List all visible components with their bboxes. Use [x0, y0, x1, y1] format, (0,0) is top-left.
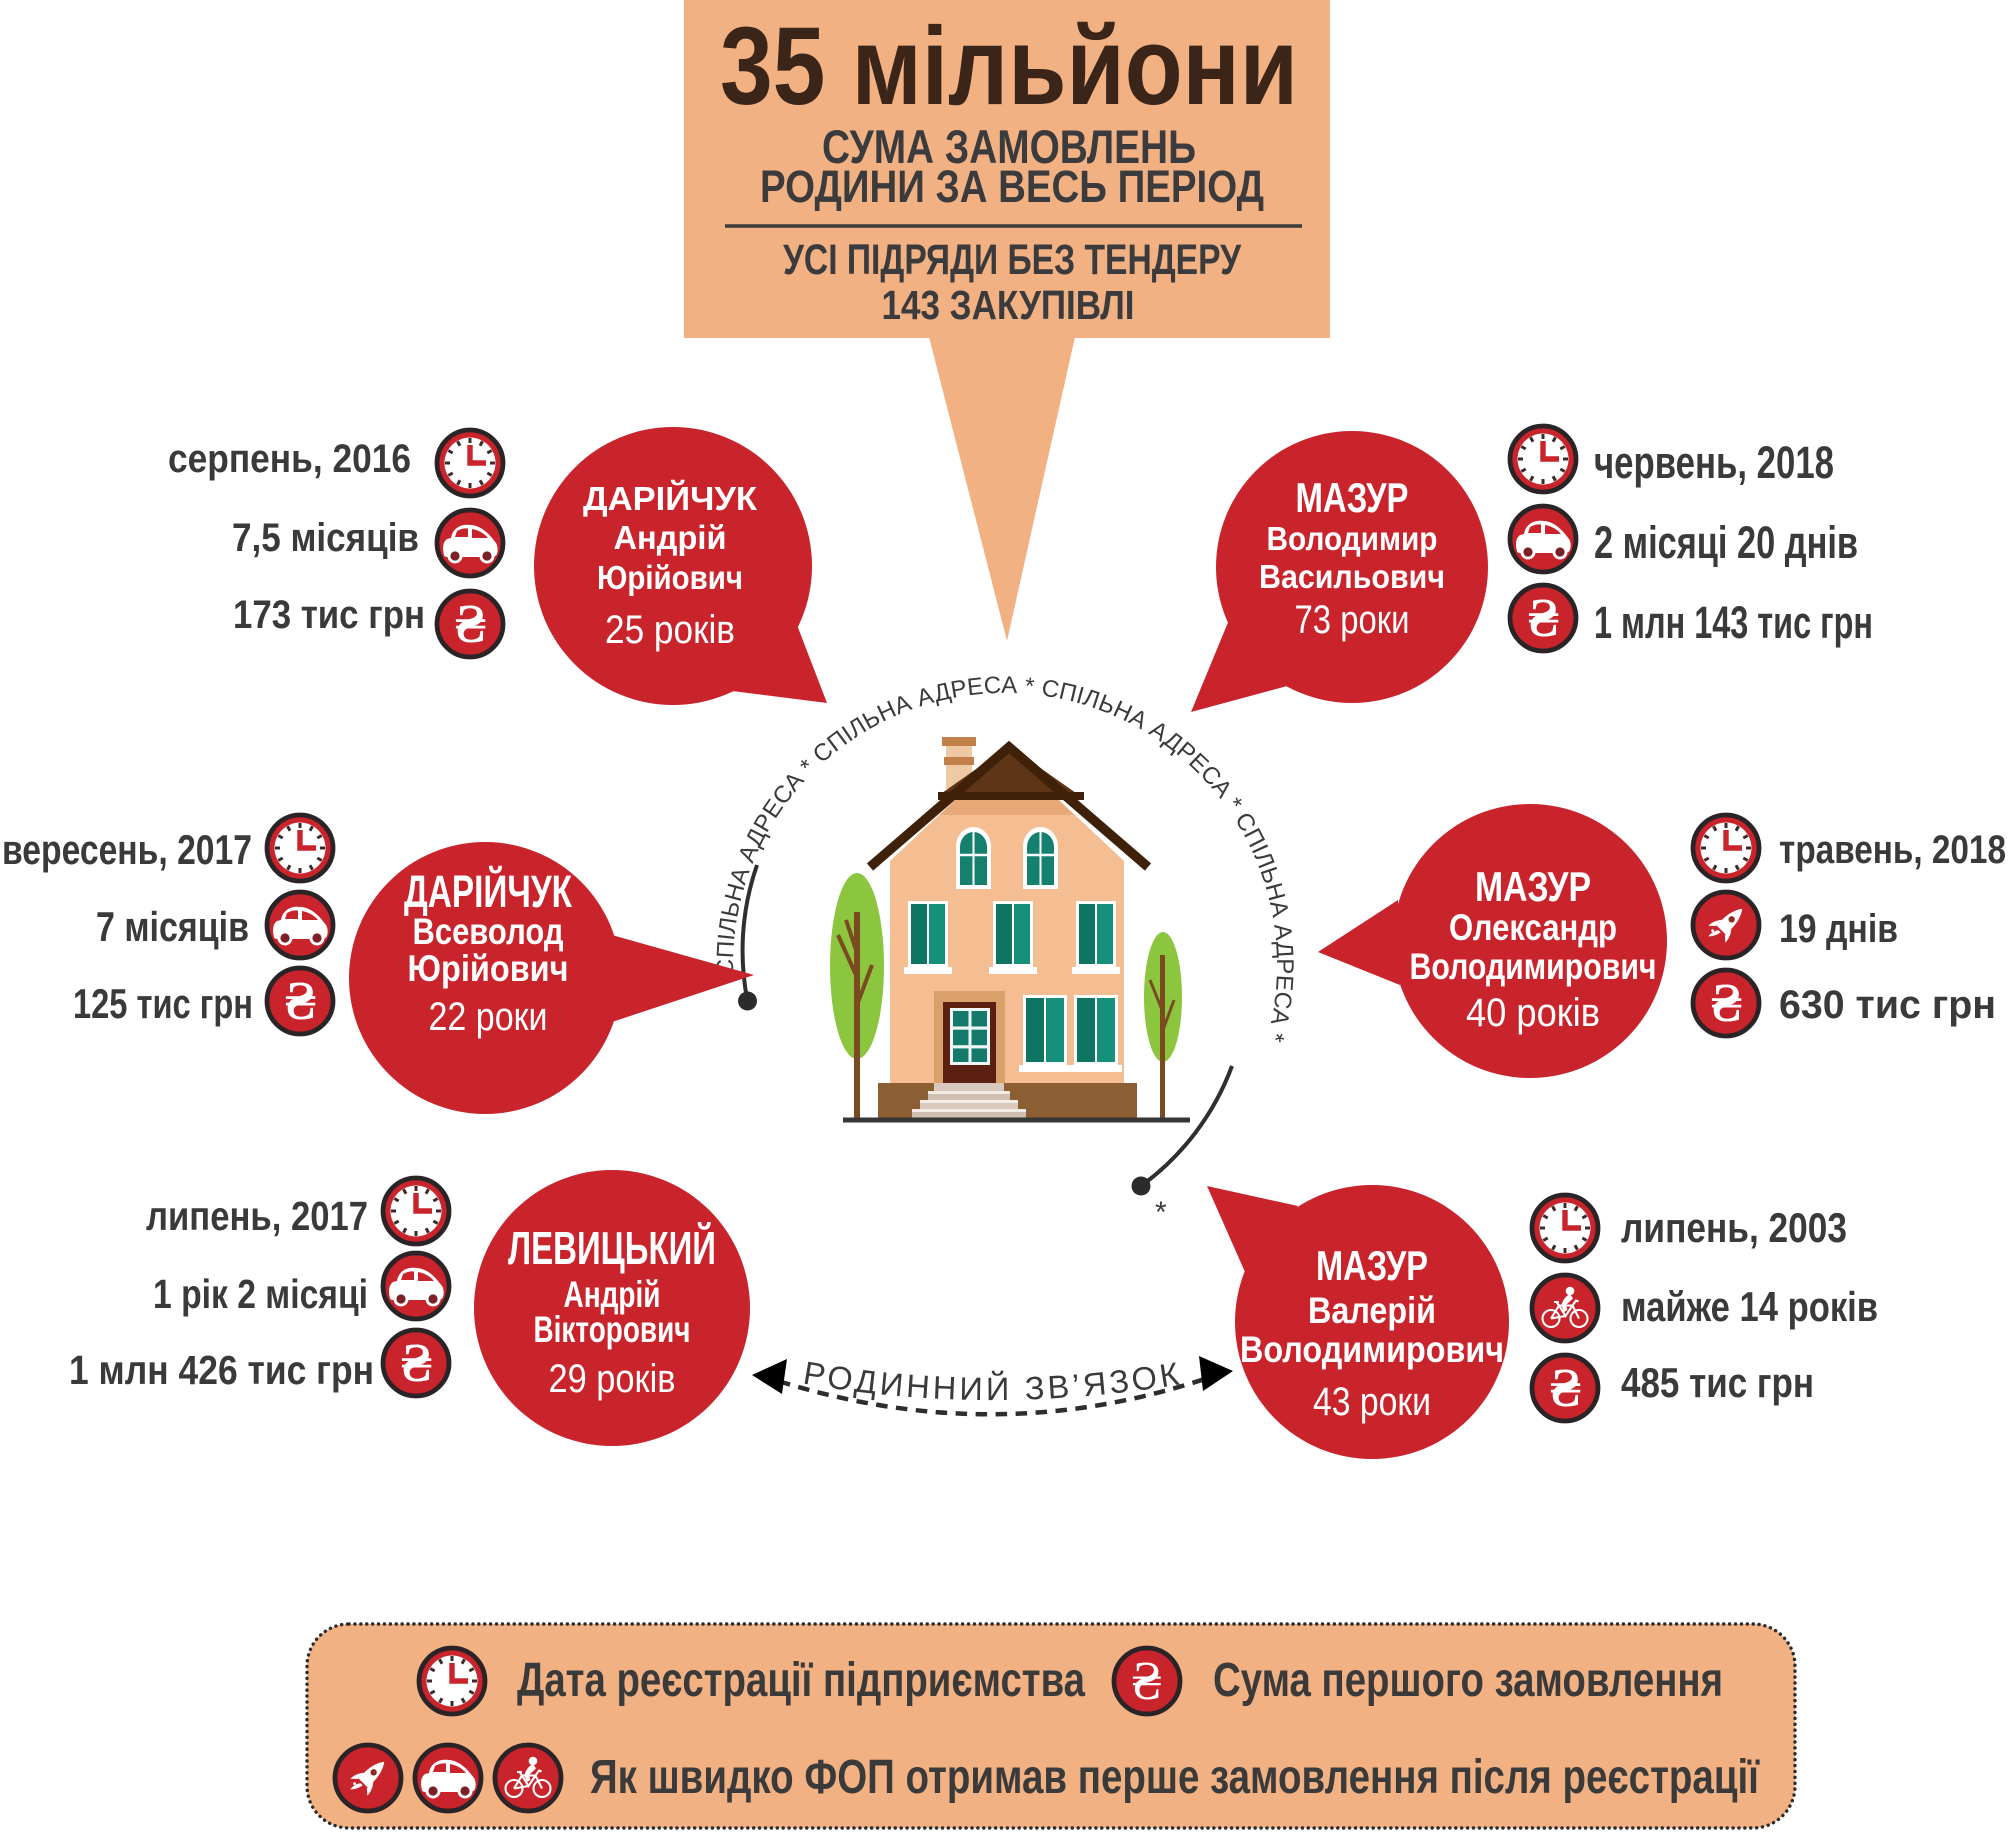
svg-text:173 тис грн: 173 тис грн	[233, 593, 425, 637]
svg-text:Васильович: Васильович	[1259, 558, 1445, 595]
svg-text:29 років: 29 років	[549, 1357, 676, 1401]
svg-text:Юрійович: Юрійович	[408, 948, 569, 989]
svg-text:22 роки: 22 роки	[429, 995, 548, 1039]
svg-text:1 млн 143 тис грн: 1 млн 143 тис грн	[1594, 597, 1873, 648]
svg-text:Юрійович: Юрійович	[597, 559, 743, 596]
svg-text:Володимирович: Володимирович	[1240, 1329, 1504, 1370]
svg-text:630 тис грн: 630 тис грн	[1779, 983, 1996, 1027]
svg-text:7 місяців: 7 місяців	[96, 903, 249, 950]
svg-text:125 тис грн: 125 тис грн	[73, 980, 253, 1027]
svg-text:червень, 2018: червень, 2018	[1594, 437, 1834, 488]
svg-text:73 роки: 73 роки	[1295, 598, 1410, 642]
svg-text:Як швидко ФОП отримав перше за: Як швидко ФОП отримав перше замовлення п…	[590, 1751, 1760, 1804]
svg-text:2 місяці 20 днів: 2 місяці 20 днів	[1594, 517, 1858, 568]
svg-text:липень, 2017: липень, 2017	[146, 1193, 368, 1239]
svg-text:1 рік 2 місяці: 1 рік 2 місяці	[153, 1271, 368, 1317]
svg-text:МАЗУР: МАЗУР	[1475, 863, 1591, 910]
svg-text:Олександр: Олександр	[1449, 907, 1617, 948]
svg-text:майже 14 років: майже 14 років	[1621, 1283, 1878, 1330]
svg-text:МАЗУР: МАЗУР	[1316, 1242, 1428, 1289]
svg-text:Дата реєстрації підприємства: Дата реєстрації підприємства	[517, 1654, 1085, 1707]
svg-text:Вікторович: Вікторович	[534, 1309, 691, 1350]
svg-text:липень, 2003: липень, 2003	[1621, 1204, 1847, 1251]
svg-text:Валерій: Валерій	[1308, 1290, 1436, 1331]
svg-text:МАЗУР: МАЗУР	[1296, 474, 1409, 521]
svg-text:Андрій: Андрій	[614, 519, 727, 556]
svg-text:Володимир: Володимир	[1267, 520, 1438, 557]
svg-text:35 мільйони: 35 мільйони	[720, 5, 1298, 128]
svg-text:травень, 2018: травень, 2018	[1779, 828, 2006, 872]
svg-text:*: *	[1155, 1196, 1167, 1229]
svg-text:серпень, 2016: серпень, 2016	[168, 437, 411, 481]
svg-text:25 років: 25 років	[605, 608, 735, 652]
svg-text:ЛЕВИЦЬКИЙ: ЛЕВИЦЬКИЙ	[508, 1222, 716, 1274]
svg-text:ДАРІЙЧУК: ДАРІЙЧУК	[404, 866, 572, 917]
svg-text:19 днів: 19 днів	[1779, 907, 1898, 951]
svg-text:Володимирович: Володимирович	[1410, 946, 1657, 987]
svg-text:1 млн 426 тис грн: 1 млн 426 тис грн	[69, 1347, 374, 1393]
svg-text:Всеволод: Всеволод	[413, 911, 564, 952]
svg-text:40 років: 40 років	[1466, 991, 1600, 1035]
svg-text:УСІ ПІДРЯДИ БЕЗ ТЕНДЕРУ: УСІ ПІДРЯДИ БЕЗ ТЕНДЕРУ	[783, 236, 1242, 284]
svg-text:485 тис грн: 485 тис грн	[1621, 1359, 1814, 1406]
svg-text:7,5 місяців: 7,5 місяців	[232, 516, 419, 560]
svg-text:РОДИНИ ЗА ВЕСЬ ПЕРІОД: РОДИНИ ЗА ВЕСЬ ПЕРІОД	[760, 161, 1264, 212]
svg-text:ДАРІЙЧУК: ДАРІЙЧУК	[583, 479, 758, 517]
svg-text:143 ЗАКУПІВЛІ: 143 ЗАКУПІВЛІ	[882, 282, 1135, 328]
svg-text:Сума першого замовлення: Сума першого замовлення	[1213, 1654, 1723, 1707]
svg-text:43 роки: 43 роки	[1313, 1380, 1431, 1424]
svg-text:вересень, 2017: вересень, 2017	[2, 826, 252, 873]
